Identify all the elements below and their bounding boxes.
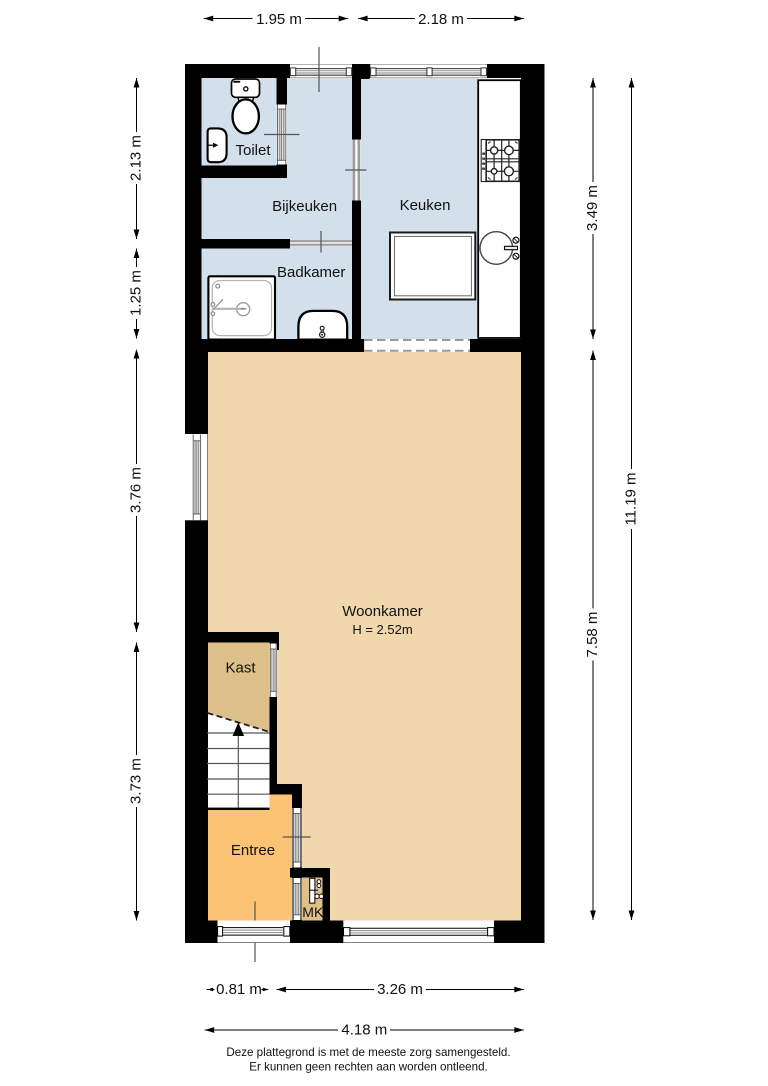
svg-text:11.19 m: 11.19 m [622, 472, 639, 525]
svg-text:7.58 m: 7.58 m [584, 612, 601, 658]
svg-text:3.49 m: 3.49 m [584, 185, 601, 231]
svg-text:0.81 m: 0.81 m [216, 981, 262, 998]
svg-text:Toilet: Toilet [235, 142, 271, 159]
svg-text:Entree: Entree [231, 842, 275, 859]
svg-text:1.95 m: 1.95 m [256, 11, 302, 28]
svg-text:3.73 m: 3.73 m [127, 758, 144, 804]
svg-text:2.13 m: 2.13 m [127, 135, 144, 181]
svg-text:Badkamer: Badkamer [277, 264, 345, 281]
svg-text:Kast: Kast [225, 660, 256, 677]
svg-text:Bijkeuken: Bijkeuken [272, 198, 337, 215]
svg-text:1.25 m: 1.25 m [127, 270, 144, 316]
svg-text:Deze plattegrond is met de mee: Deze plattegrond is met de meeste zorg s… [226, 1046, 510, 1059]
svg-text:Er kunnen geen rechten aan wor: Er kunnen geen rechten aan worden ontlee… [249, 1061, 488, 1074]
svg-text:2.18 m: 2.18 m [418, 11, 464, 28]
svg-text:H = 2.52m: H = 2.52m [352, 622, 412, 637]
svg-text:Keuken: Keuken [400, 197, 451, 214]
svg-text:MK: MK [302, 904, 324, 920]
svg-text:3.26 m: 3.26 m [377, 981, 423, 998]
svg-text:4.18 m: 4.18 m [341, 1022, 387, 1039]
svg-text:Woonkamer: Woonkamer [342, 603, 423, 620]
svg-text:3.76 m: 3.76 m [127, 467, 144, 513]
